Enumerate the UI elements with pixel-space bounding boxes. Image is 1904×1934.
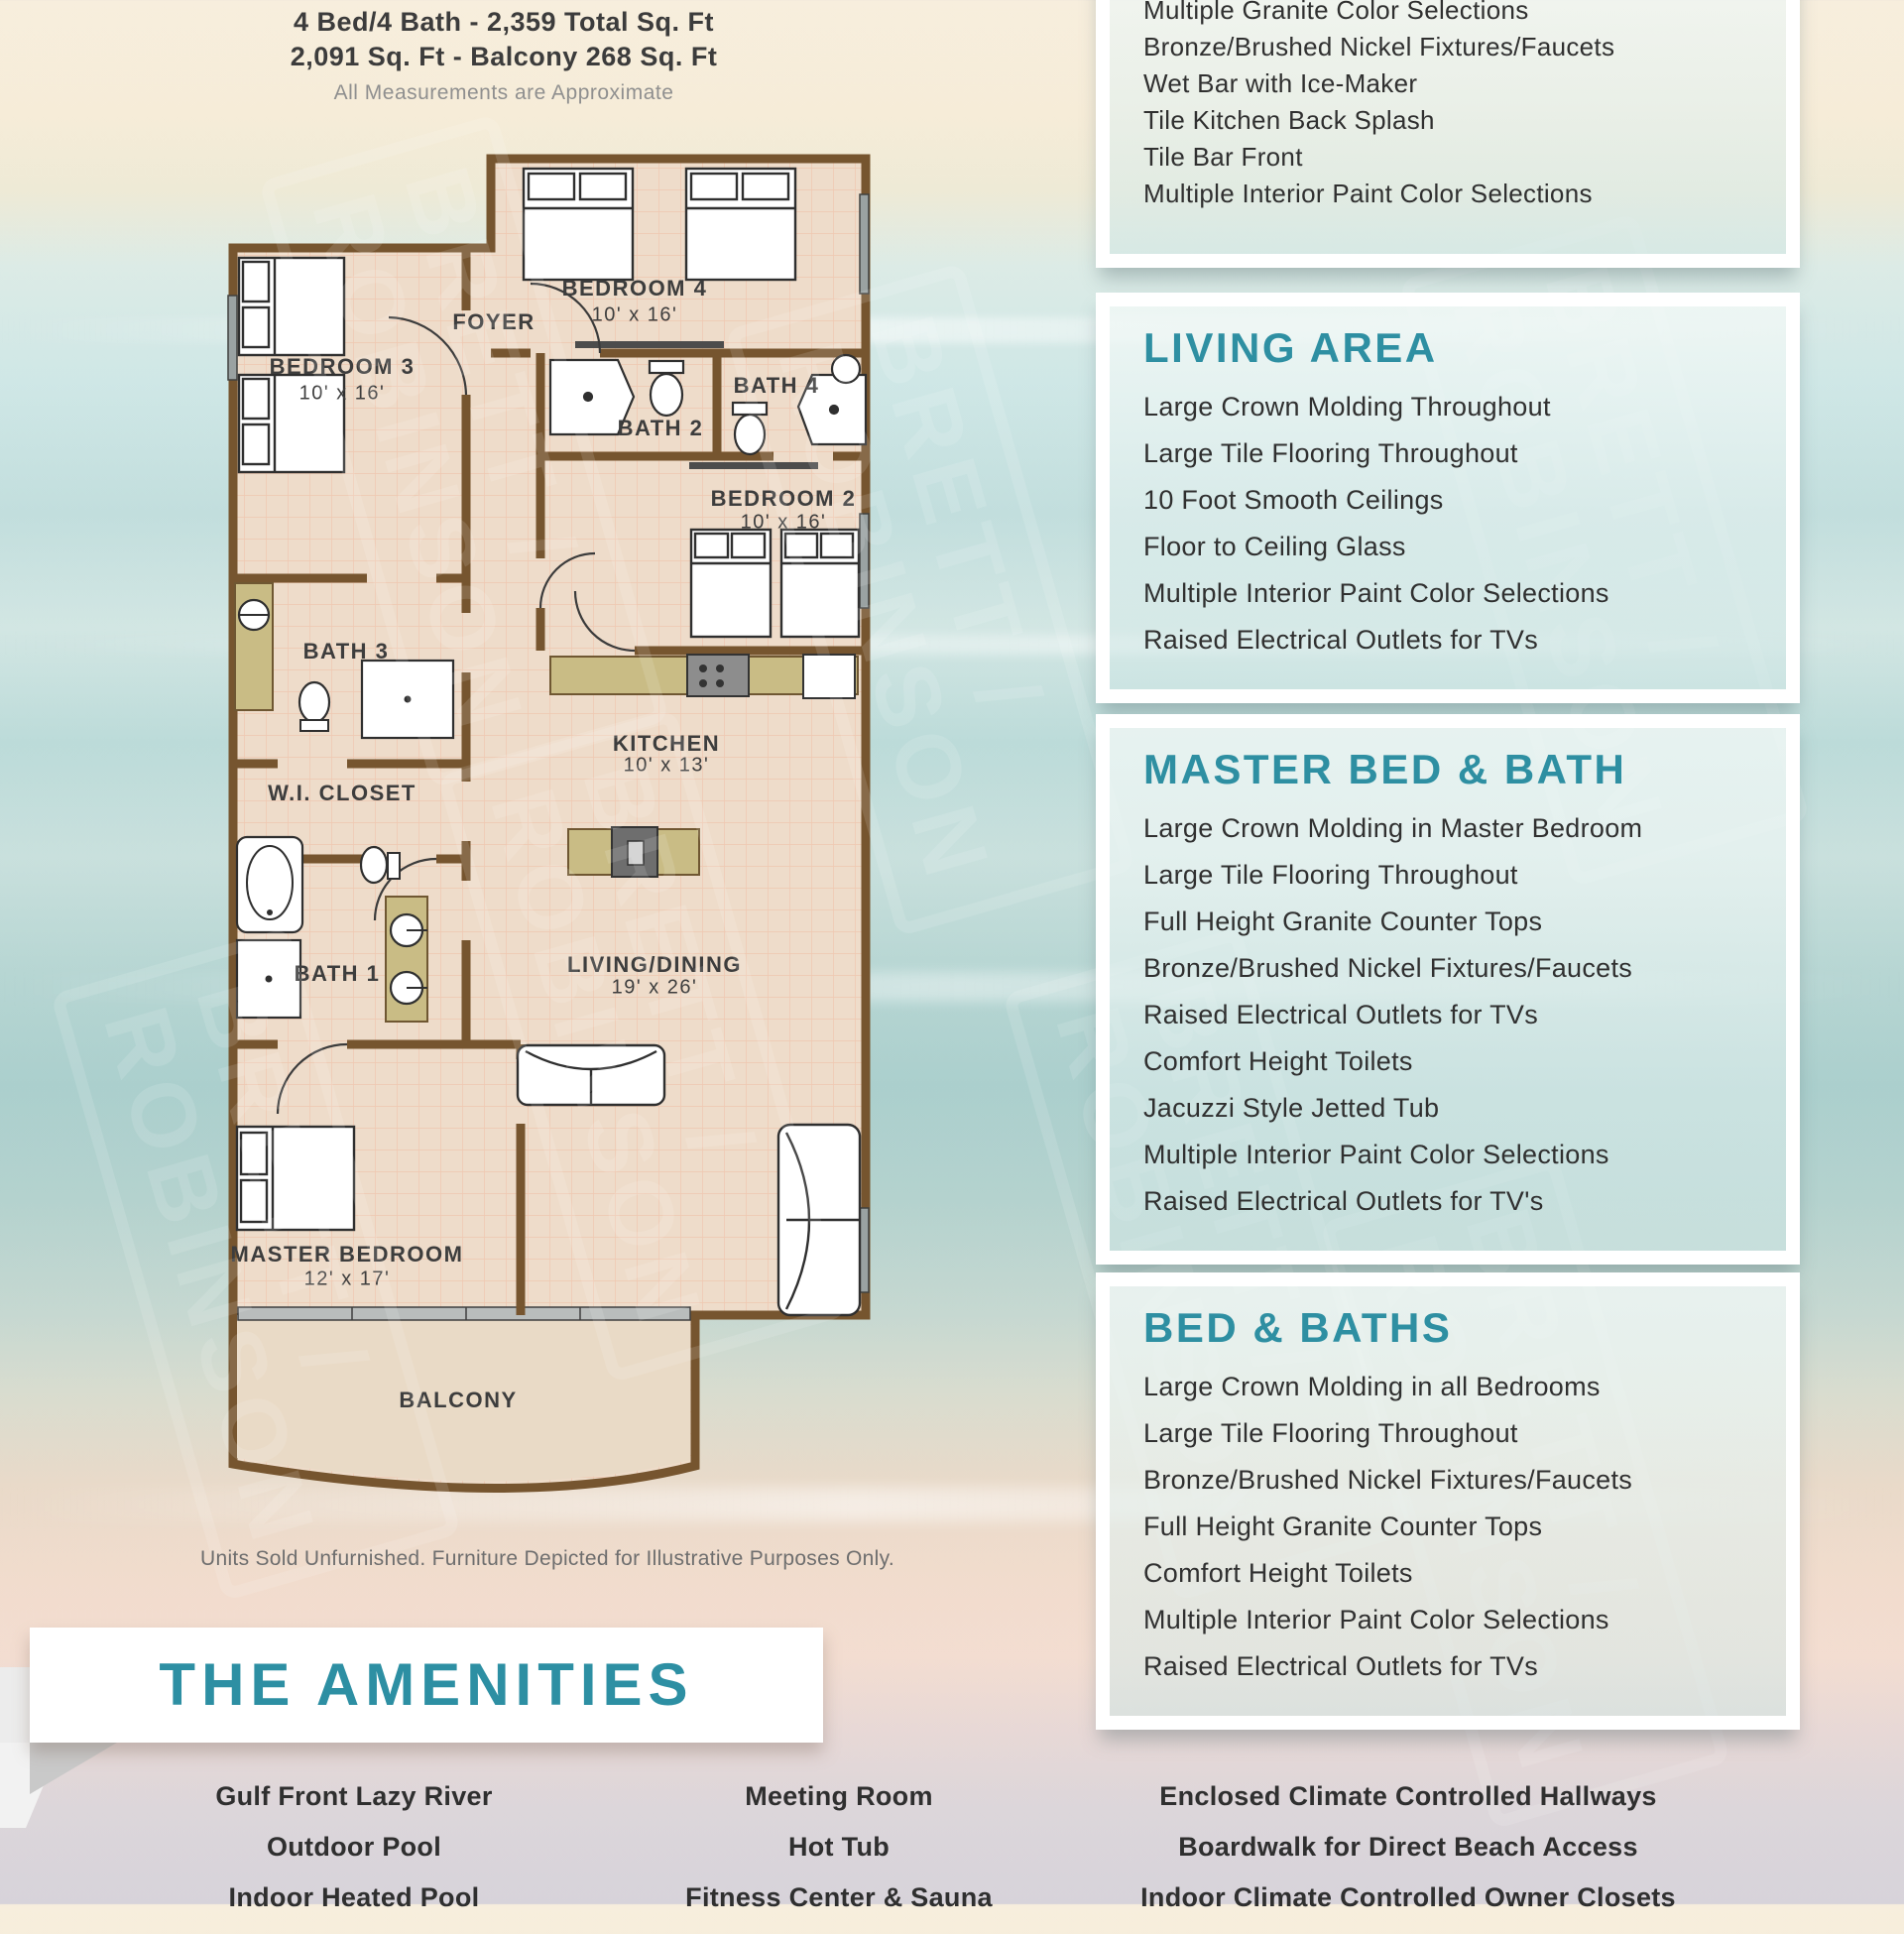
- feature-item: Multiple Interior Paint Color Selections: [1143, 176, 1758, 212]
- feature-item: Raised Electrical Outlets for TV's: [1143, 1178, 1758, 1225]
- feature-item: Multiple Granite Color Selections: [1143, 0, 1758, 29]
- room-label-bedroom-2: BEDROOM 2: [711, 486, 857, 512]
- amenities-column-3: Enclosed Climate Controlled Hallways Boa…: [1130, 1782, 1686, 1934]
- amenities-column-2: Meeting Room Hot Tub Fitness Center & Sa…: [561, 1782, 1117, 1934]
- floor-plan-drawing: [223, 147, 878, 1517]
- feature-item: Multiple Interior Paint Color Selections: [1143, 1597, 1758, 1643]
- room-label-bedroom-3: BEDROOM 3: [270, 354, 416, 380]
- master-bed-bath-feature-list: Large Crown Molding in Master Bedroom La…: [1143, 805, 1758, 1225]
- feature-item: Large Tile Flooring Throughout: [1143, 1410, 1758, 1457]
- panel-bed-baths: BED & BATHS Large Crown Molding in all B…: [1096, 1272, 1800, 1730]
- panel-title-living-area: LIVING AREA: [1143, 322, 1758, 374]
- feature-item: Large Crown Molding Throughout: [1143, 384, 1758, 430]
- feature-item: Comfort Height Toilets: [1143, 1550, 1758, 1597]
- panel-kitchen-features: Multiple Granite Color Selections Bronze…: [1096, 0, 1800, 268]
- room-dims-master-bedroom: 12' x 17': [304, 1269, 391, 1291]
- room-label-bath-1: BATH 1: [295, 961, 381, 987]
- room-dims-kitchen: 10' x 13': [624, 755, 710, 778]
- panel-title-master-bed-bath: MASTER BED & BATH: [1143, 744, 1758, 795]
- unit-summary-line2: 2,091 Sq. Ft - Balcony 268 Sq. Ft: [167, 40, 841, 74]
- feature-item: Large Crown Molding in Master Bedroom: [1143, 805, 1758, 852]
- room-dims-bedroom-3: 10' x 16': [299, 383, 386, 406]
- room-label-bedroom-4: BEDROOM 4: [562, 276, 708, 302]
- amenities-banner: THE AMENITIES: [30, 1628, 823, 1743]
- unit-summary-line1: 4 Bed/4 Bath - 2,359 Total Sq. Ft: [167, 5, 841, 40]
- feature-item: Bronze/Brushed Nickel Fixtures/Faucets: [1143, 1457, 1758, 1504]
- room-label-master-bedroom: MASTER BEDROOM: [231, 1242, 464, 1268]
- feature-item: Wet Bar with Ice-Maker: [1143, 65, 1758, 102]
- feature-item: Raised Electrical Outlets for TVs: [1143, 992, 1758, 1038]
- room-dims-bedroom-4: 10' x 16': [592, 304, 678, 327]
- feature-item: Multiple Interior Paint Color Selections: [1143, 570, 1758, 617]
- bed-baths-feature-list: Large Crown Molding in all Bedrooms Larg…: [1143, 1364, 1758, 1690]
- amenity-item: Outdoor Pool: [76, 1833, 632, 1862]
- feature-item: 10 Foot Smooth Ceilings: [1143, 477, 1758, 524]
- room-label-wi-closet: W.I. CLOSET: [268, 781, 416, 806]
- feature-item: Large Tile Flooring Throughout: [1143, 852, 1758, 899]
- furniture-disclaimer: Units Sold Unfurnished. Furniture Depict…: [200, 1547, 894, 1571]
- feature-item: Jacuzzi Style Jetted Tub: [1143, 1085, 1758, 1132]
- feature-item: Full Height Granite Counter Tops: [1143, 1504, 1758, 1550]
- amenity-item: Gulf Front Lazy River: [76, 1782, 632, 1811]
- banner-ribbon-fold: [30, 1743, 117, 1794]
- room-label-balcony: BALCONY: [399, 1388, 517, 1413]
- room-label-bath-4: BATH 4: [734, 373, 820, 399]
- feature-item: Raised Electrical Outlets for TVs: [1143, 617, 1758, 664]
- amenity-item: Fitness Center & Sauna: [561, 1883, 1117, 1912]
- feature-item: Multiple Interior Paint Color Selections: [1143, 1132, 1758, 1178]
- feature-item: Tile Bar Front: [1143, 139, 1758, 176]
- room-label-kitchen: KITCHEN: [613, 731, 720, 757]
- feature-item: Floor to Ceiling Glass: [1143, 524, 1758, 570]
- feature-item: Large Crown Molding in all Bedrooms: [1143, 1364, 1758, 1410]
- panel-living-area: LIVING AREA Large Crown Molding Througho…: [1096, 293, 1800, 703]
- floor-plan: [223, 147, 878, 1517]
- panel-master-bed-bath: MASTER BED & BATH Large Crown Molding in…: [1096, 714, 1800, 1265]
- room-label-bath-3: BATH 3: [303, 639, 390, 665]
- amenities-title: THE AMENITIES: [30, 1628, 823, 1743]
- feature-item: Full Height Granite Counter Tops: [1143, 899, 1758, 945]
- feature-item: Large Tile Flooring Throughout: [1143, 430, 1758, 477]
- unit-summary: 4 Bed/4 Bath - 2,359 Total Sq. Ft 2,091 …: [167, 5, 841, 108]
- amenity-item: Boardwalk for Direct Beach Access: [1130, 1833, 1686, 1862]
- watermark-text: BRETT /: [854, 306, 1099, 867]
- room-dims-bedroom-2: 10' x 16': [741, 512, 827, 535]
- banner-ribbon-back: [0, 1667, 30, 1743]
- panel-title-bed-baths: BED & BATHS: [1143, 1302, 1758, 1354]
- feature-item: Comfort Height Toilets: [1143, 1038, 1758, 1085]
- unit-summary-note: All Measurements are Approximate: [167, 78, 841, 108]
- feature-item: Bronze/Brushed Nickel Fixtures/Faucets: [1143, 29, 1758, 65]
- amenities-column-1: Gulf Front Lazy River Outdoor Pool Indoo…: [76, 1782, 632, 1934]
- amenity-item: Meeting Room: [561, 1782, 1117, 1811]
- amenity-item: Hot Tub: [561, 1833, 1117, 1862]
- feature-item: Raised Electrical Outlets for TVs: [1143, 1643, 1758, 1690]
- room-label-bath-2: BATH 2: [618, 416, 704, 441]
- amenity-item: Enclosed Climate Controlled Hallways: [1130, 1782, 1686, 1811]
- room-label-living-dining: LIVING/DINING: [567, 952, 742, 978]
- room-label-foyer: FOYER: [452, 309, 535, 335]
- living-area-feature-list: Large Crown Molding Throughout Large Til…: [1143, 384, 1758, 664]
- amenity-item: Indoor Heated Pool: [76, 1883, 632, 1912]
- kitchen-feature-list: Multiple Granite Color Selections Bronze…: [1143, 0, 1758, 212]
- amenity-item: Indoor Climate Controlled Owner Closets: [1130, 1883, 1686, 1912]
- room-dims-living-dining: 19' x 26': [612, 977, 698, 1000]
- feature-item: Tile Kitchen Back Splash: [1143, 102, 1758, 139]
- feature-item: Bronze/Brushed Nickel Fixtures/Faucets: [1143, 945, 1758, 992]
